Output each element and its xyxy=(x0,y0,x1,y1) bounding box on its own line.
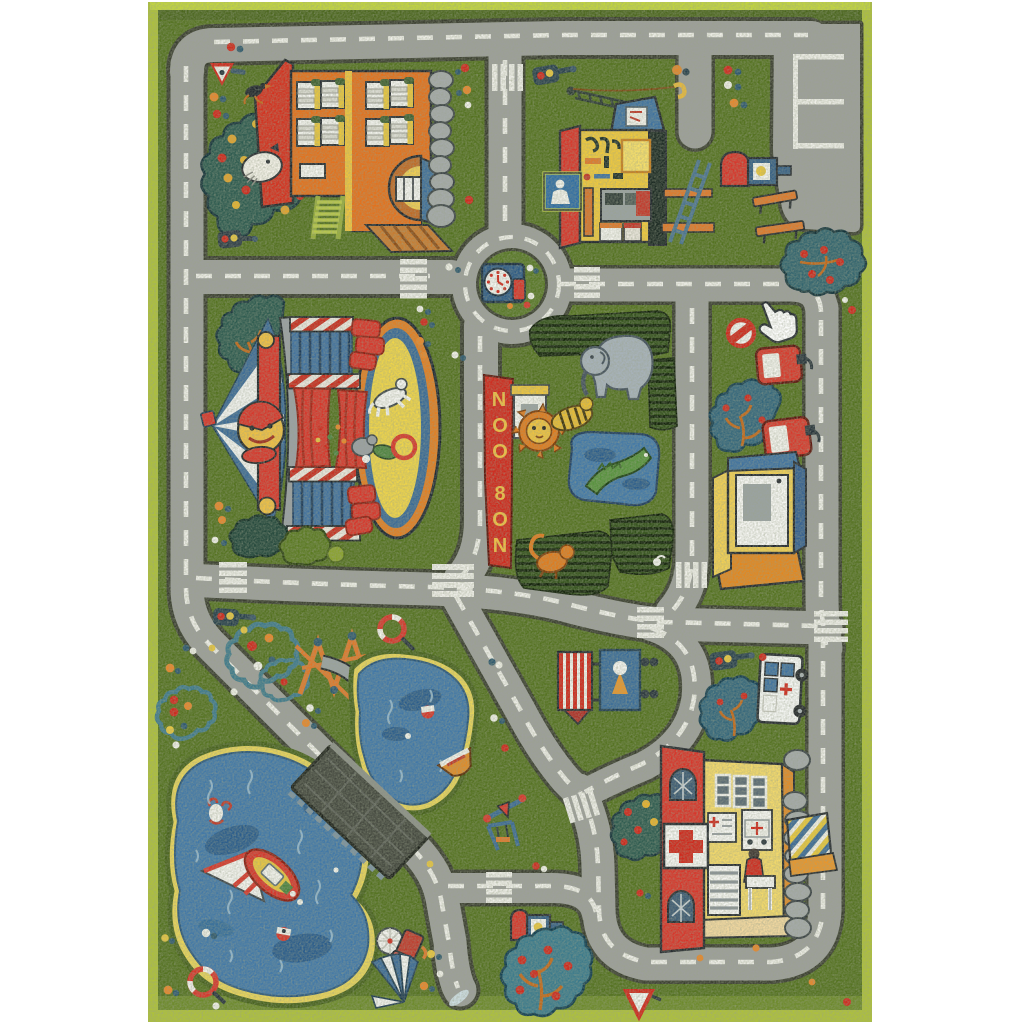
svg-text:O: O xyxy=(492,441,508,463)
svg-text:N: N xyxy=(493,535,507,557)
svg-text:N: N xyxy=(492,389,506,411)
svg-text:8: 8 xyxy=(494,483,505,505)
svg-text:O: O xyxy=(492,509,508,531)
svg-text:O: O xyxy=(492,415,508,437)
